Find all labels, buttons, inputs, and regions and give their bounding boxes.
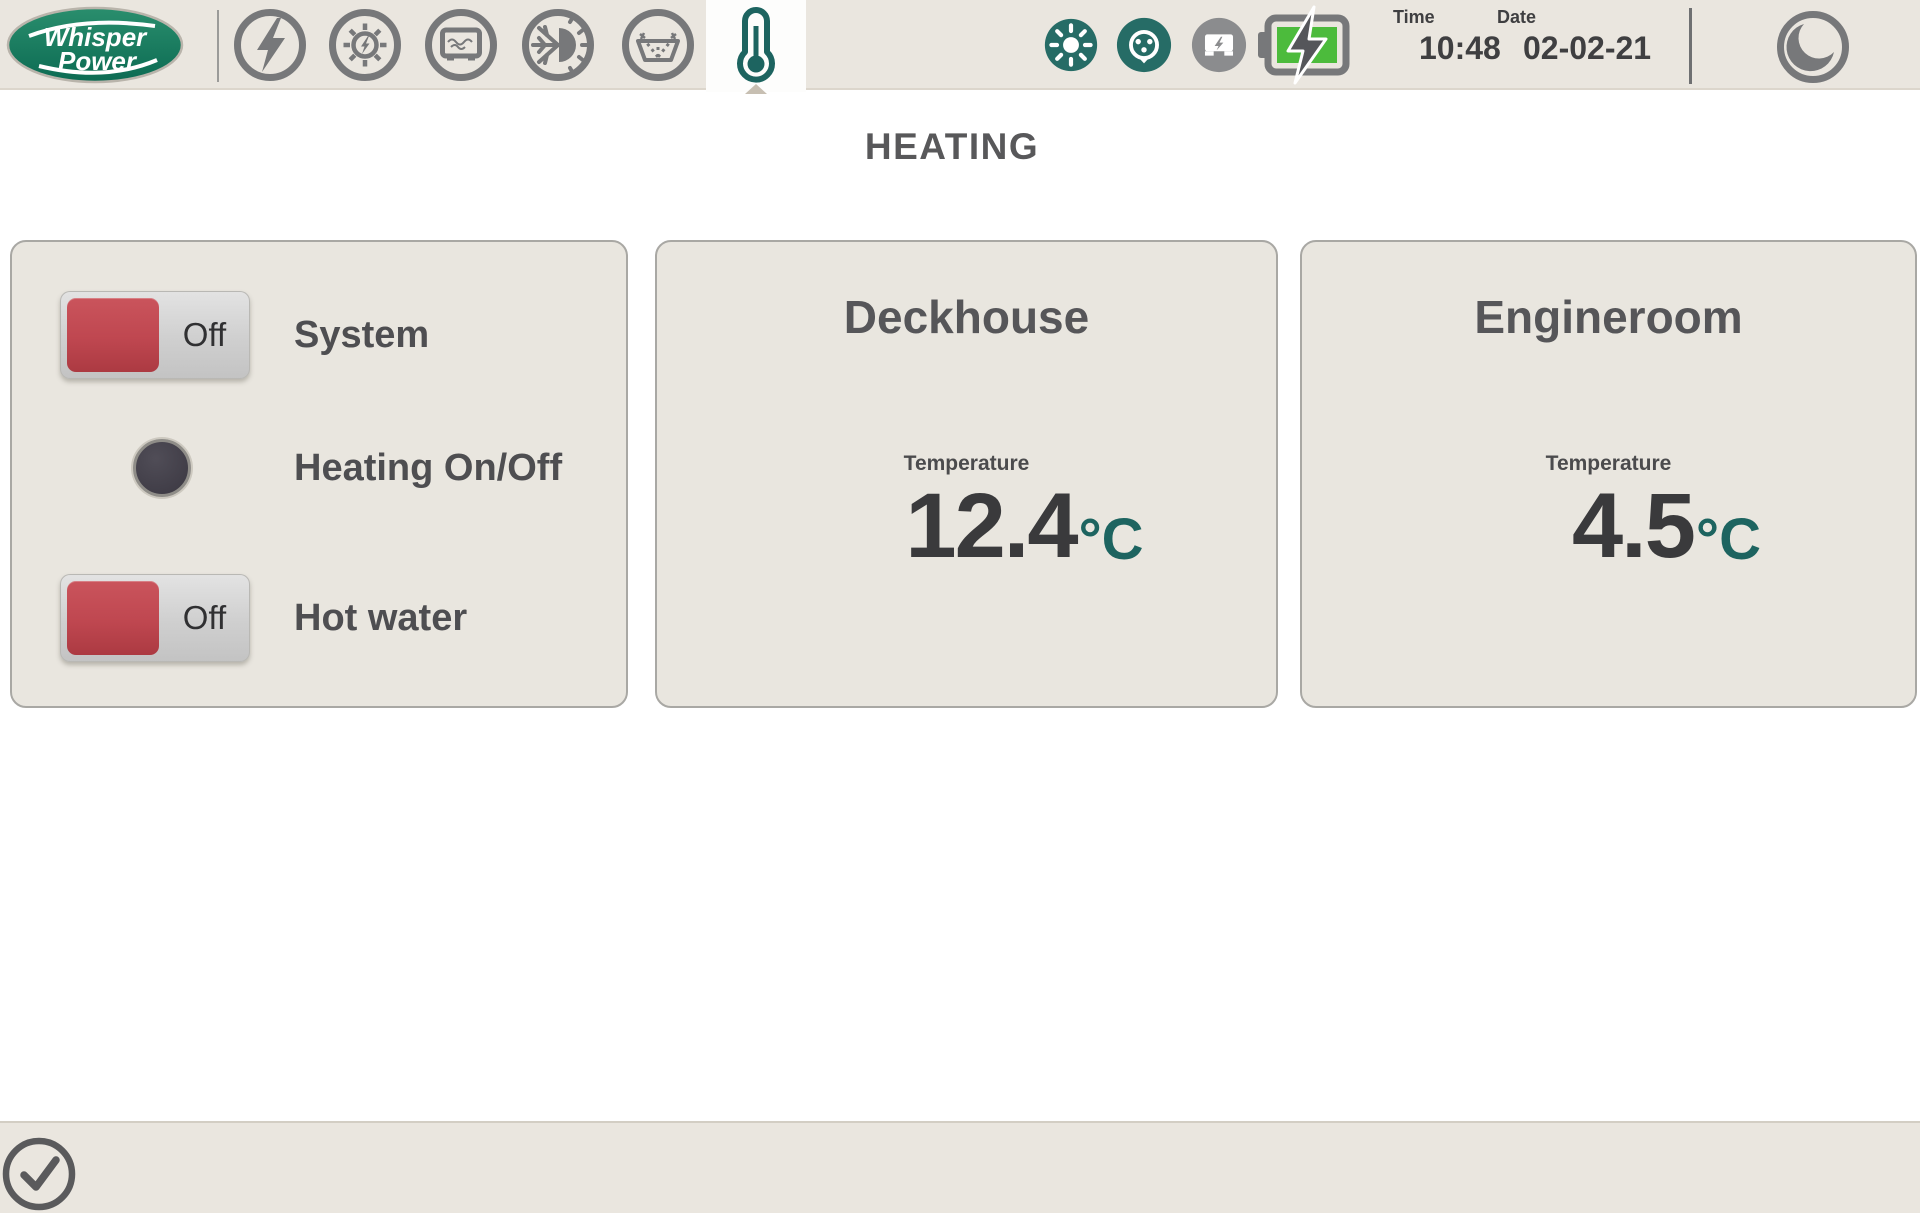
temperature-unit: °C [1696,511,1761,569]
solar-icon[interactable] [325,5,405,85]
heating-screen: Whisper Power [0,0,1920,1213]
confirm-check-icon[interactable] [0,1133,80,1213]
time-label: Time [1393,8,1501,26]
topbar-divider-right [1689,8,1692,84]
night-mode-moon-icon[interactable] [1773,7,1853,87]
logo-text-line2: Power [58,46,138,76]
hot-water-toggle-state: Off [159,574,250,662]
system-toggle[interactable]: Off [60,291,250,379]
electrical-power-icon[interactable] [230,5,310,85]
zone-title: Deckhouse [657,290,1276,344]
heating-controls-panel: Off System Heating On/Off Off Hot water [10,240,628,708]
date-value: 02-02-21 [1523,30,1651,67]
page-title: HEATING [0,126,1904,168]
clock-time-group: Time 10:48 [1393,8,1501,67]
thermometer-icon [728,6,784,86]
hot-water-label: Hot water [294,588,467,648]
clock-date-group: Date 02-02-21 [1497,8,1651,67]
solar-active-status-icon [1043,17,1099,73]
tab-heating-selected[interactable] [706,0,806,92]
selected-tab-arrow [745,84,767,94]
zone-temperature-value: 12.4 °C [715,480,1334,572]
heating-on-off-label: Heating On/Off [294,438,562,498]
system-label: System [294,305,429,365]
bottom-bar [0,1121,1920,1213]
generator-icon[interactable] [421,5,501,85]
inverter-status-icon [1190,16,1248,74]
heating-on-off-button[interactable] [133,439,191,497]
system-toggle-knob [67,298,159,372]
deckhouse-zone-panel: Deckhouse Temperature 12.4 °C [655,240,1278,708]
topbar-divider-left [217,10,219,82]
zone-measure-label: Temperature [657,452,1276,476]
engineroom-zone-panel: Engineroom Temperature 4.5 °C [1300,240,1917,708]
temperature-number: 4.5 [1572,480,1694,572]
system-toggle-state: Off [159,291,250,379]
windshield-washer-icon[interactable] [618,5,698,85]
date-label: Date [1497,8,1651,26]
whisperpower-logo: Whisper Power [5,6,185,84]
time-value: 10:48 [1419,30,1501,67]
temperature-unit: °C [1078,511,1143,569]
zone-measure-label: Temperature [1302,452,1915,476]
hot-water-toggle-knob [67,581,159,655]
hot-water-toggle[interactable]: Off [60,574,250,662]
top-bar: Whisper Power [0,0,1920,90]
temperature-number: 12.4 [905,480,1076,572]
battery-charging-status-icon [1250,5,1358,85]
shore-power-status-icon [1115,16,1173,74]
zone-temperature-value: 4.5 °C [1360,480,1920,572]
climate-icon[interactable] [518,5,598,85]
zone-title: Engineroom [1302,290,1915,344]
